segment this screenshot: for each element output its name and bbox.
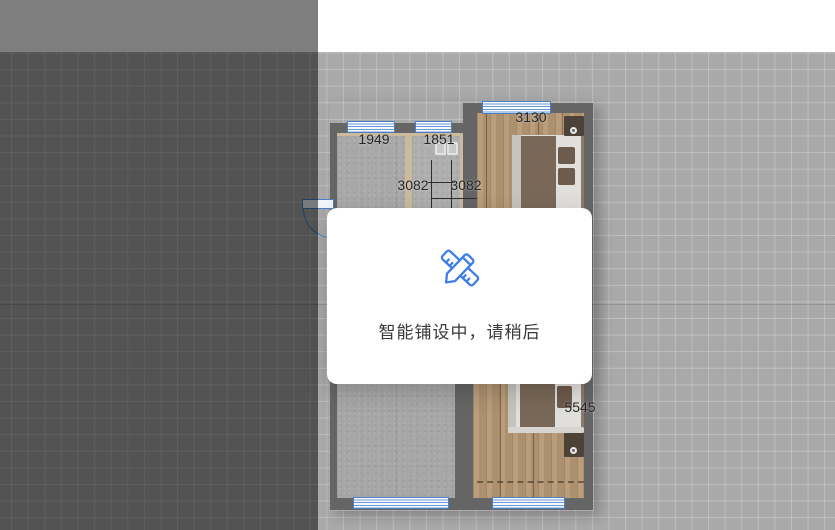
dim-overlay bbox=[0, 0, 318, 530]
bed-foot-edge bbox=[508, 377, 516, 433]
dimension-label: 1851 bbox=[423, 131, 454, 147]
loading-message: 智能铺设中，请稍后 bbox=[379, 318, 541, 343]
bed-pillow bbox=[558, 168, 575, 185]
bed-foot-edge bbox=[512, 135, 521, 211]
bed-duvet bbox=[520, 377, 555, 427]
loading-modal: 智能铺设中，请稍后 bbox=[327, 208, 592, 384]
lamp-icon bbox=[570, 127, 577, 134]
dimension-label: 3082 bbox=[450, 177, 481, 193]
dimension-label: 5545 bbox=[564, 399, 595, 415]
dimension-label: 3082 bbox=[397, 177, 428, 193]
dimension-label: 3130 bbox=[515, 109, 546, 125]
bed-top-bedroom[interactable] bbox=[512, 135, 584, 211]
nightstand[interactable] bbox=[564, 433, 584, 457]
dimension-line bbox=[431, 198, 477, 199]
window-symbol[interactable] bbox=[492, 497, 565, 509]
design-app-stage: 1949 1851 3130 3082 3082 5545 智能铺设中，请稍后 bbox=[0, 0, 835, 530]
bed-pillow bbox=[558, 147, 575, 164]
window-symbol[interactable] bbox=[353, 497, 449, 509]
bed-headboard bbox=[581, 135, 584, 211]
bed-duvet bbox=[521, 136, 556, 210]
dimension-label: 1949 bbox=[358, 131, 389, 147]
pencil-ruler-icon bbox=[436, 244, 484, 292]
paving-guide-line bbox=[477, 481, 584, 483]
nightstand[interactable] bbox=[564, 116, 584, 136]
lamp-icon bbox=[570, 447, 577, 454]
